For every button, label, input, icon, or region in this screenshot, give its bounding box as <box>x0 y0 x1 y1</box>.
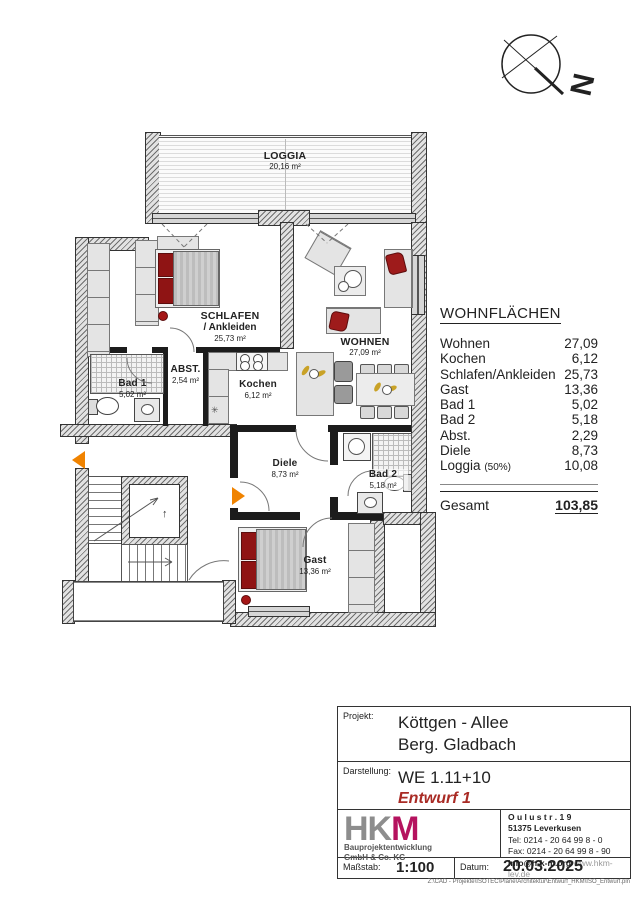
wall-segment <box>230 425 238 478</box>
hkm-logo: HKM <box>344 812 418 846</box>
company-line1: Bauprojektentwicklung <box>344 843 432 853</box>
sofa <box>326 307 381 334</box>
room-area: 8,73 m² <box>255 470 315 479</box>
room-area: 25,73 m² <box>185 334 275 343</box>
row-label: Wohnen <box>440 336 490 351</box>
room-name: Bad 1 <box>105 378 160 390</box>
wall-segment <box>338 425 411 432</box>
room-label-kochen: Kochen 6,12 m² <box>228 379 288 400</box>
bed <box>155 249 220 308</box>
row-value: 10,08 <box>564 458 598 475</box>
logo-divider <box>500 810 501 857</box>
room-name: Diele <box>255 458 315 470</box>
room-name: Gast <box>285 555 345 567</box>
row-value: 13,36 <box>564 382 598 397</box>
area-table: WOHNFLÄCHEN Wohnen27,09 Kochen6,12 Schla… <box>440 305 598 514</box>
table-decor <box>338 281 349 292</box>
sink <box>134 398 160 422</box>
dining-chair <box>394 406 409 419</box>
projekt-label: Projekt: <box>343 711 374 721</box>
room-area: 20,16 m² <box>235 162 335 171</box>
wall-segment <box>196 347 208 353</box>
wall-segment <box>75 468 89 582</box>
table-row: Loggia (50%) 10,08 <box>440 458 598 475</box>
file-path: Z:\CAD - Projekte\ISOTEC\Pläne\Architekt… <box>395 879 630 885</box>
wall-segment <box>330 425 338 465</box>
total-label: Gesamt <box>440 497 489 514</box>
stool <box>241 595 251 605</box>
pillow <box>241 561 257 589</box>
wall-segment <box>280 222 294 349</box>
coffee-table <box>334 266 366 296</box>
row-label: Loggia (50%) <box>440 458 511 475</box>
staircase <box>121 544 188 582</box>
room-name: SCHLAFEN <box>185 310 275 322</box>
massstab-label: Maßstab: <box>343 862 381 872</box>
pillow <box>158 253 174 277</box>
table-decor <box>373 381 382 392</box>
datum-label: Datum: <box>460 862 489 872</box>
sink-basin <box>141 404 154 415</box>
dining-table <box>356 373 415 406</box>
title-block: Projekt: Köttgen - Allee Berg. Gladbach … <box>337 706 631 879</box>
burner-icon <box>240 361 250 371</box>
table-decor <box>382 385 392 395</box>
dining-chair <box>360 406 375 419</box>
table-row: Wohnen27,09 <box>440 336 598 351</box>
darstellung-line1: WE 1.11+10 <box>398 767 630 789</box>
room-label-diele: Diele 8,73 m² <box>255 458 315 479</box>
darstellung-label: Darstellung: <box>343 766 391 776</box>
row-note: (50%) <box>484 462 511 473</box>
projekt-line1: Köttgen - Allee <box>398 712 630 734</box>
projekt-line2: Berg. Gladbach <box>398 734 630 756</box>
stool <box>158 311 168 321</box>
table-row: Diele8,73 <box>440 443 598 458</box>
table-row: Abst.2,29 <box>440 428 598 443</box>
title-block-logo-row: HKM Bauprojektentwicklung GmbH & Co. KG … <box>338 810 630 858</box>
table-total-row: Gesamt 103,85 <box>440 491 598 514</box>
row-value: 6,12 <box>572 351 598 366</box>
mattress <box>173 251 219 306</box>
table-row: Schlafen/Ankleiden25,73 <box>440 367 598 382</box>
area-table-title: WOHNFLÄCHEN <box>440 305 561 324</box>
wardrobe <box>348 523 375 613</box>
row-value: 5,02 <box>572 397 598 412</box>
sink-basin <box>364 497 377 508</box>
blanket <box>328 310 350 332</box>
wall-segment <box>222 580 236 624</box>
title-block-scale-row: Maßstab: 1:100 Datum: 20.03.2025 <box>338 858 630 878</box>
counter-decor <box>309 369 319 379</box>
row-label: Gast <box>440 382 469 397</box>
address-tel: Tel: 0214 - 20 64 99 8 - 0 <box>508 835 626 846</box>
row-label: Bad 1 <box>440 397 475 412</box>
darstellung-value: WE 1.11+10 Entwurf 1 <box>398 762 630 810</box>
wall-segment <box>420 512 436 627</box>
stove <box>236 352 268 371</box>
sink <box>357 492 383 514</box>
total-value: 103,85 <box>555 497 598 514</box>
room-label-loggia: LOGGIA 20,16 m² <box>235 150 335 171</box>
title-block-darstellung-row: Darstellung: WE 1.11+10 Entwurf 1 <box>338 762 630 810</box>
row-value: 25,73 <box>564 367 598 382</box>
address-fax: Fax: 0214 - 20 64 99 8 - 90 <box>508 846 626 857</box>
row-value: 2,29 <box>572 428 598 443</box>
row-label: Kochen <box>440 351 486 366</box>
room-area: 13,36 m² <box>285 567 345 576</box>
room-label-bad1: Bad 1 5,02 m² <box>105 378 160 399</box>
balcony-band <box>73 581 224 622</box>
row-label: Abst. <box>440 428 471 443</box>
wall-segment <box>60 424 237 437</box>
burner-icon <box>253 361 263 371</box>
bar-stool <box>334 361 353 382</box>
room-area: 5,02 m² <box>105 390 160 399</box>
window-band <box>248 606 310 617</box>
entrance-arrow-icon <box>72 451 85 469</box>
table-row: Bad 25,18 <box>440 412 598 427</box>
scale-divider <box>454 858 455 878</box>
washing-machine <box>343 433 371 461</box>
room-label-abst: ABST. 2,54 m² <box>163 364 208 385</box>
table-row: Bad 15,02 <box>440 397 598 412</box>
pillow <box>241 532 257 560</box>
blanket <box>385 251 408 276</box>
wardrobe <box>87 243 110 357</box>
table-row: Gast13,36 <box>440 382 598 397</box>
table-row: Kochen6,12 <box>440 351 598 366</box>
row-value: 5,18 <box>572 412 598 427</box>
room-label-schlafen: SCHLAFEN / Ankleiden 25,73 m² <box>185 310 275 343</box>
room-area: 5,18 m² <box>358 481 408 490</box>
wall-segment <box>411 132 427 224</box>
room-name: WOHNEN <box>320 336 410 348</box>
pillow <box>158 278 174 304</box>
row-value: 27,09 <box>564 336 598 351</box>
row-value: 8,73 <box>572 443 598 458</box>
wall-segment <box>230 512 300 520</box>
elevator-car <box>129 484 180 538</box>
room-name: LOGGIA <box>235 150 335 162</box>
row-label: Schlafen/Ankleiden <box>440 367 556 382</box>
floor-plan-sheet: { "compass": { "north": "N" }, "plan": {… <box>0 0 636 900</box>
wall-segment <box>238 425 296 432</box>
row-label: Bad 2 <box>440 412 475 427</box>
row-label-text: Loggia <box>440 458 481 473</box>
staircase <box>88 476 123 544</box>
address-line1: O u l u s t r . 1 9 <box>508 812 626 823</box>
room-name: Kochen <box>228 379 288 391</box>
bar-stool <box>334 385 353 404</box>
entrance-arrow-icon <box>232 487 245 505</box>
kitchen-peninsula <box>296 352 334 416</box>
room-name: Bad 2 <box>358 469 408 481</box>
projekt-value: Köttgen - Allee Berg. Gladbach <box>398 707 630 756</box>
table-separator <box>440 484 598 485</box>
room-name-2: / Ankleiden <box>185 322 275 334</box>
washer-drum <box>348 438 365 455</box>
sofa <box>384 249 413 308</box>
room-area: 6,12 m² <box>228 391 288 400</box>
elevator-up-arrow: ↑ <box>162 508 168 520</box>
room-name: ABST. <box>163 364 208 376</box>
toilet-bowl <box>96 397 119 415</box>
address-line2: 51375 Leverkusen <box>508 823 626 834</box>
entwurf-label: Entwurf 1 <box>398 789 630 810</box>
window-band <box>411 255 425 315</box>
datum-value: 20.03.2025 <box>503 858 583 876</box>
dining-chair <box>377 406 392 419</box>
freezer-star-icon: ✳ <box>211 405 219 416</box>
room-area: 2,54 m² <box>163 376 208 385</box>
massstab-value: 1:100 <box>396 859 434 876</box>
room-label-gast: Gast 13,36 m² <box>285 555 345 576</box>
room-label-bad2: Bad 2 5,18 m² <box>358 469 408 490</box>
row-label: Diele <box>440 443 471 458</box>
title-block-project-row: Projekt: Köttgen - Allee Berg. Gladbach <box>338 707 630 762</box>
